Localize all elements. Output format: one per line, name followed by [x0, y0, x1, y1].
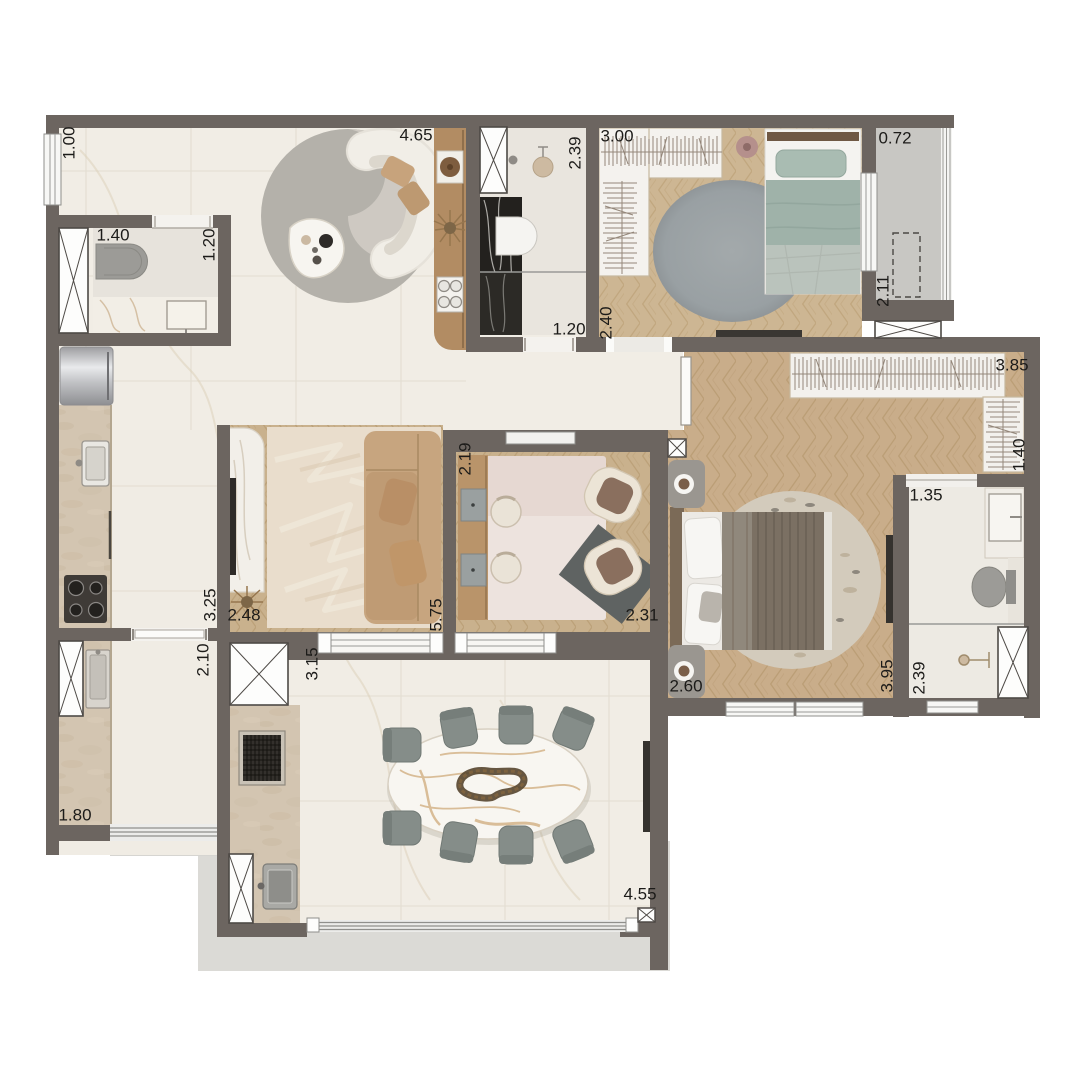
svg-text:2.31: 2.31: [625, 605, 658, 624]
svg-text:1.35: 1.35: [909, 485, 942, 504]
svg-text:1.00: 1.00: [59, 126, 78, 159]
svg-text:2.11: 2.11: [873, 275, 892, 307]
svg-text:2.39: 2.39: [565, 136, 584, 169]
svg-text:2.40: 2.40: [596, 306, 615, 339]
svg-text:0.72: 0.72: [878, 128, 911, 147]
svg-text:3.95: 3.95: [877, 659, 896, 692]
svg-text:1.40: 1.40: [96, 225, 129, 244]
svg-text:5.75: 5.75: [426, 598, 445, 631]
svg-text:1.20: 1.20: [552, 319, 585, 338]
svg-text:4.65: 4.65: [399, 125, 432, 144]
svg-text:3.85: 3.85: [995, 355, 1028, 374]
svg-text:3.15: 3.15: [302, 647, 321, 680]
svg-text:2.60: 2.60: [669, 676, 702, 695]
svg-text:1.40: 1.40: [1009, 438, 1028, 471]
svg-text:2.48: 2.48: [227, 605, 260, 624]
svg-text:1.80: 1.80: [58, 805, 91, 824]
svg-text:2.39: 2.39: [909, 661, 928, 694]
svg-text:4.55: 4.55: [623, 884, 656, 903]
svg-text:1.20: 1.20: [199, 228, 218, 261]
svg-text:3.00: 3.00: [600, 126, 633, 145]
svg-text:2.10: 2.10: [193, 643, 212, 676]
svg-text:3.25: 3.25: [200, 588, 219, 621]
svg-text:2.19: 2.19: [455, 442, 474, 475]
